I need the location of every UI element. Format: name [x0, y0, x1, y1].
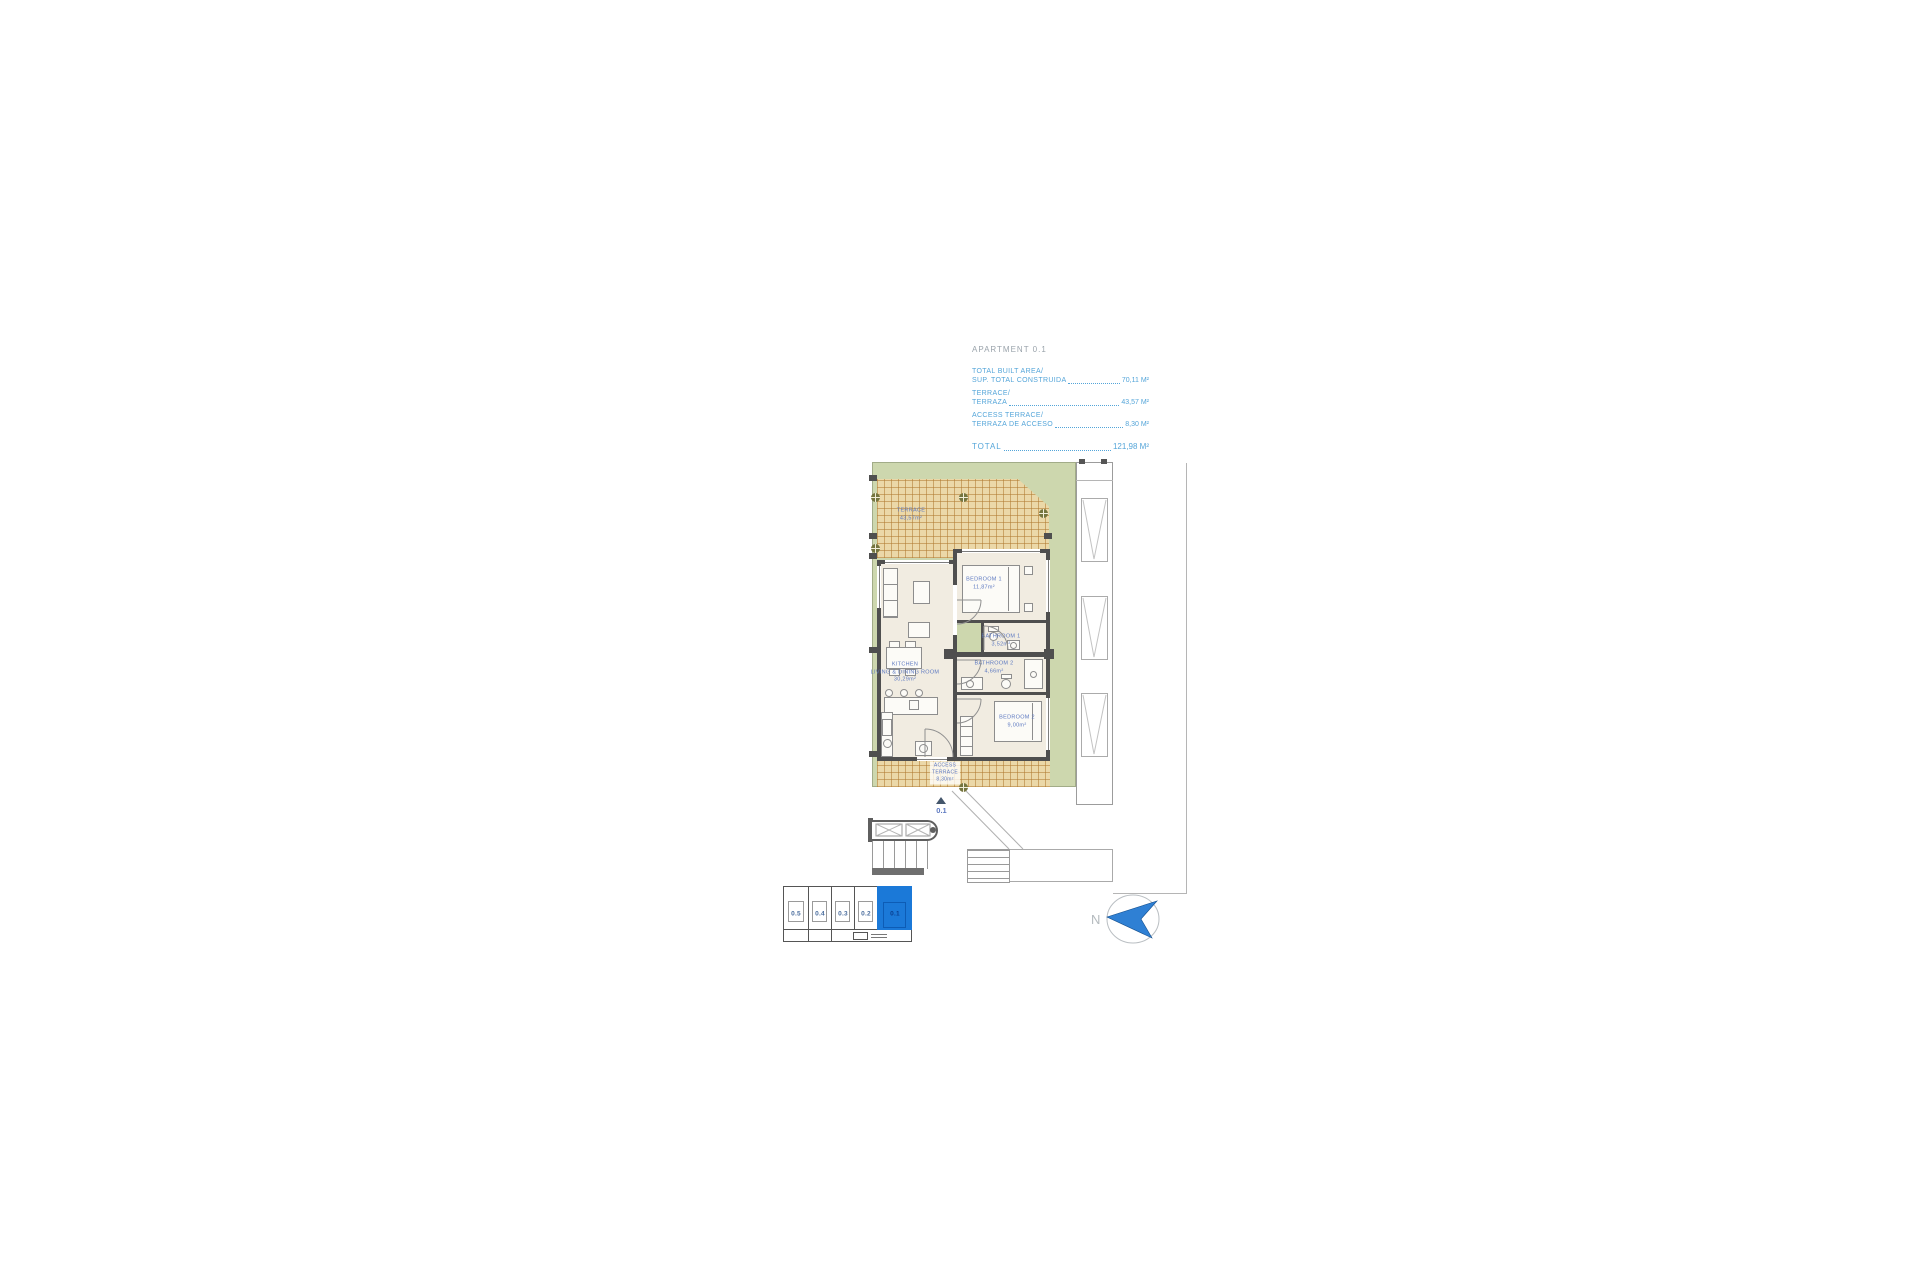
plan-line-overlay	[0, 0, 1920, 1280]
keyplan-unit-label-highlighted: 0.1	[890, 911, 900, 918]
key-plan: 0.5 0.4 0.3 0.2 0.1	[783, 886, 915, 946]
keyplan-hatch-detail	[871, 934, 887, 939]
floor-plan-sheet: APARTMENT 0.1 TOTAL BUILT AREA/ SUP. TOT…	[0, 0, 1920, 1280]
compass: N	[1090, 890, 1170, 950]
keyplan-divider	[808, 886, 809, 930]
keyplan-unit-label: 0.5	[791, 911, 801, 918]
keyplan-entry-detail	[853, 932, 868, 940]
keyplan-lower-strip	[783, 930, 912, 942]
keyplan-unit-label: 0.4	[815, 911, 825, 918]
site-plan: TERRACE 43,57m² KITCHEN LIVING & DINING …	[0, 0, 1920, 1280]
keyplan-divider	[808, 930, 809, 942]
keyplan-divider	[831, 886, 832, 930]
north-arrow-icon: N	[1090, 890, 1170, 950]
north-label: N	[1091, 912, 1100, 927]
keyplan-divider	[831, 930, 832, 942]
keyplan-unit-label: 0.3	[838, 911, 848, 918]
keyplan-unit-label: 0.2	[861, 911, 871, 918]
keyplan-divider	[854, 886, 855, 930]
